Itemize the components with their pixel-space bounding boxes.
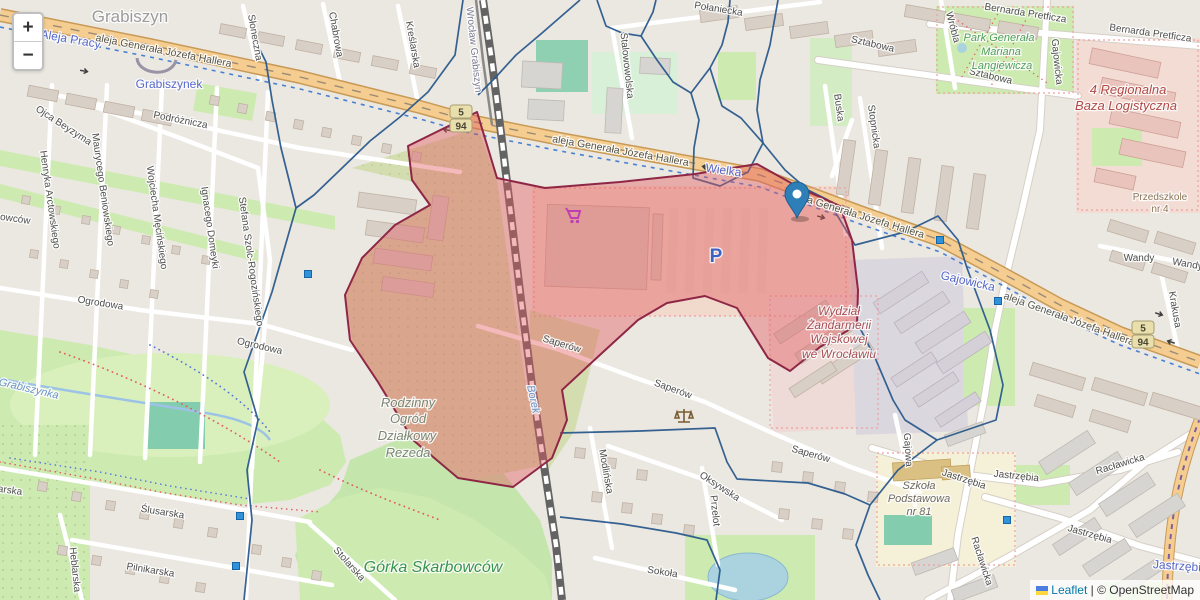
map-label: Mariana [981, 46, 1021, 58]
map-label: Wandy [1124, 253, 1155, 264]
transit-stop-icon [995, 298, 1002, 305]
map-label: Park Generała [964, 32, 1035, 44]
attribution-separator: | [1087, 583, 1097, 597]
svg-text:94: 94 [455, 122, 467, 133]
map-label: Baza Logistyczna [1075, 98, 1177, 113]
road-shield: 94 [450, 119, 472, 133]
map-label: Górka Skarbowców [364, 559, 504, 576]
map-label: nr 81 [906, 506, 931, 518]
map-label: Ogród [390, 411, 427, 426]
map-graphics: GrabiszynAleja Pracyaleja Generała Józef… [0, 0, 1200, 600]
map-label: Szkoła [902, 480, 935, 492]
road-shield: 5 [1132, 321, 1154, 335]
map-label: Wydział [818, 304, 860, 318]
map-label: Żandarmerii [806, 318, 871, 332]
map-label: Rezeda [386, 445, 431, 460]
map-label: nr 4 [1151, 204, 1169, 215]
map-label: Przedszkole [1133, 192, 1188, 203]
svg-text:94: 94 [1137, 338, 1149, 349]
road-shield: 5 [450, 105, 472, 119]
leaflet-link[interactable]: Leaflet [1051, 583, 1087, 597]
map-label: we Wrocławiu [802, 347, 876, 361]
svg-text:5: 5 [1140, 324, 1146, 335]
openstreetmap-link[interactable]: © OpenStreetMap [1097, 583, 1194, 597]
transit-stop-icon [237, 513, 244, 520]
zoom-in-button[interactable]: + [14, 14, 42, 41]
transit-stop-icon [305, 271, 312, 278]
map-label: Rodzinny [381, 395, 437, 410]
svg-text:5: 5 [458, 108, 464, 119]
ukraine-flag-icon [1036, 586, 1048, 595]
road-shield: 94 [1132, 335, 1154, 349]
map-label: Podstawowa [888, 493, 950, 505]
map-label: Grabiszynek [136, 77, 204, 91]
map-label: Grabiszyn [92, 7, 169, 26]
transit-stop-icon [1004, 517, 1011, 524]
zoom-out-button[interactable]: − [14, 41, 42, 69]
map-label: Działkowy [378, 428, 438, 443]
map-label: P [710, 246, 723, 267]
transit-stop-icon [937, 237, 944, 244]
map-label: Wojskowej [810, 332, 868, 346]
zoom-control: + − [12, 12, 44, 71]
map-label: 4 Regionalna [1090, 82, 1167, 97]
transit-stop-icon [233, 563, 240, 570]
map-label: Langiewicza [972, 60, 1033, 72]
attribution-bar: Leaflet | © OpenStreetMap [1030, 580, 1200, 600]
map-canvas[interactable]: GrabiszynAleja Pracyaleja Generała Józef… [0, 0, 1200, 600]
